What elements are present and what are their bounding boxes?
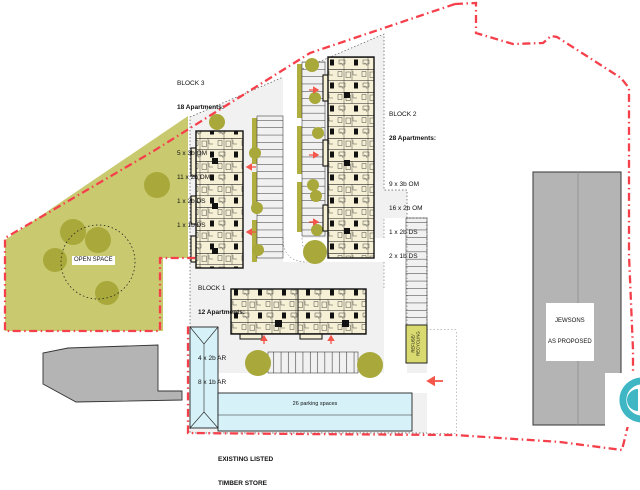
refuse-store-label: REFUSE/ RECYCLING [411, 327, 420, 361]
block-1-subtitle: 12 Apartments: [198, 309, 245, 317]
refuse-label-line2: RECYCLING [416, 327, 421, 361]
bottom-note-line2: TIMBER STORE [218, 480, 274, 488]
block-2-title: BLOCK 2 [389, 111, 436, 119]
bottom-note-line1: EXISTING LISTED [218, 456, 274, 464]
block-3-unit-mix: 1 x 2b DS [177, 198, 224, 206]
block-1-building [231, 289, 366, 339]
block-3-unit-mix: 5 x 3b OM [177, 150, 224, 158]
block-1-unit-mix: 8 x 1b AR [198, 379, 245, 387]
existing-building-southwest [43, 345, 182, 402]
jewsons-label: JEWSONS AS PROPOSED [546, 303, 594, 361]
block-3-annotation: BLOCK 3 18 Apartments: 5 x 3b OM 11 x 2b… [177, 64, 224, 246]
block-1-title: BLOCK 1 [198, 285, 245, 293]
block-2-annotation: BLOCK 2 28 Apartments: 9 x 3b OM 16 x 2b… [389, 95, 436, 277]
logo-mark [605, 373, 640, 427]
jewsons-label-line2: AS PROPOSED [548, 339, 592, 346]
parking-band-label: 26 parking spaces [218, 401, 412, 407]
block-2-building [323, 57, 374, 258]
block-2-unit-mix: 9 x 3b OM [389, 181, 436, 189]
block-3-subtitle: 18 Apartments: [177, 104, 224, 112]
open-space-label: OPEN SPACE [72, 256, 115, 265]
block-2-unit-mix: 2 x 1b DS [389, 253, 436, 261]
block-3-unit-mix: 1 x 1b DS [177, 222, 224, 230]
block-2-subtitle: 28 Apartments: [389, 135, 436, 143]
block-3-unit-mix: 11 x 2b OM [177, 174, 224, 182]
jewsons-label-line1: JEWSONS [548, 318, 592, 325]
bottom-note: EXISTING LISTED TIMBER STORE 26 parking … [218, 440, 274, 490]
block-1-unit-mix: 4 x 2b AR [198, 355, 245, 363]
block-3-title: BLOCK 3 [177, 80, 224, 88]
block-1-annotation: BLOCK 1 12 Apartments: 4 x 2b AR 8 x 1b … [198, 269, 245, 403]
site-plan: BLOCK 3 18 Apartments: 5 x 3b OM 11 x 2b… [0, 0, 640, 490]
block-2-unit-mix: 1 x 2b DS [389, 229, 436, 237]
site-plan-drawing [0, 0, 640, 490]
block-2-unit-mix: 16 x 2b OM [389, 205, 436, 213]
